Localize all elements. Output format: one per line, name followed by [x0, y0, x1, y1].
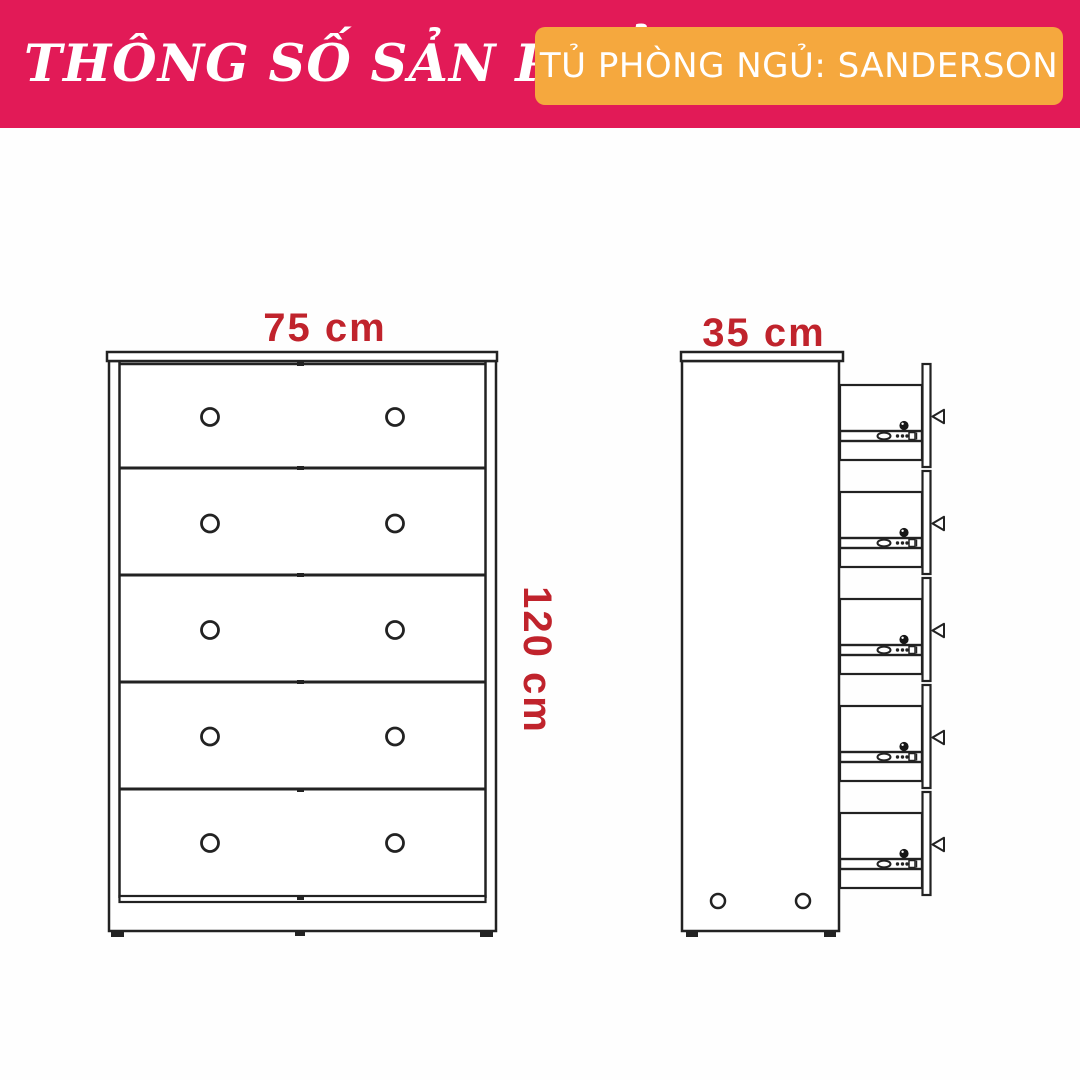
drawer-knob: [387, 622, 404, 639]
rail-bearing-dot: [901, 541, 904, 544]
rail-bearing-dot: [905, 541, 908, 544]
front-carcass: [109, 361, 496, 931]
rail-ball: [899, 421, 908, 430]
side-foot-left: [686, 931, 698, 937]
drawer-knob: [202, 728, 219, 745]
front-foot-left: [111, 931, 124, 937]
drawer-box-side: [840, 385, 922, 460]
center-mark: [297, 466, 304, 470]
drawer-knob: [387, 515, 404, 532]
side-foot-right: [824, 931, 836, 937]
rail-bearing-dot: [905, 755, 908, 758]
drawer-box-side: [840, 706, 922, 781]
rail-bearing-dot: [896, 541, 899, 544]
side-hole-right: [796, 894, 810, 908]
rail-bearing-dot: [905, 434, 908, 437]
rail-ball-highlight: [901, 530, 903, 532]
rail-ball: [899, 742, 908, 751]
page: THÔNG SỐ SẢN PHẨM TỦ PHÒNG NGỦ: SANDERSO…: [0, 0, 1080, 1080]
rail-bearing-dot: [896, 648, 899, 651]
drawer-knob: [387, 409, 404, 426]
rail-end-bracket: [909, 754, 915, 761]
side-drawer-unit: [840, 792, 944, 895]
front-height-label: 120 cm: [515, 586, 559, 734]
front-foot-right: [480, 931, 493, 937]
rail-ball: [899, 849, 908, 858]
side-drawer-unit: [840, 364, 944, 467]
mounting-clip: [933, 410, 945, 423]
rail-roller: [878, 540, 891, 547]
rail-ball-highlight: [901, 851, 903, 853]
rail-roller: [878, 754, 891, 761]
drawer-front-edge: [923, 685, 931, 788]
drawer-box-side: [840, 599, 922, 674]
rail-ball: [899, 528, 908, 537]
side-depth-label: 35 cm: [702, 311, 825, 355]
side-drawer-unit: [840, 471, 944, 574]
rail-bearing-dot: [905, 648, 908, 651]
center-mark: [297, 788, 304, 792]
center-mark: [297, 896, 304, 900]
rail-bearing-dot: [896, 862, 899, 865]
rail-end-bracket: [909, 433, 915, 440]
front-top-board: [107, 352, 497, 361]
side-drawer-unit: [840, 578, 944, 681]
rail-ball-highlight: [901, 423, 903, 425]
rail-end-bracket: [909, 861, 915, 868]
drawer-box-side: [840, 492, 922, 567]
rail-bearing-dot: [901, 648, 904, 651]
front-view-drawing: [107, 352, 497, 937]
cabinet-spec-svg: 75 cm 120 cm 35 cm: [0, 0, 1080, 1080]
drawer-box-side: [840, 813, 922, 888]
rail-ball-highlight: [901, 637, 903, 639]
side-hole-left: [711, 894, 725, 908]
mounting-clip: [933, 731, 945, 744]
mounting-clip: [933, 624, 945, 637]
drawer-front-edge: [923, 578, 931, 681]
side-panel: [682, 361, 839, 931]
side-drawer-unit: [840, 685, 944, 788]
side-drawer-stack: [840, 364, 944, 895]
side-view-drawing: [681, 352, 944, 937]
drawer-knob: [387, 835, 404, 852]
technical-drawing: 75 cm 120 cm 35 cm: [0, 0, 1080, 1080]
center-mark: [297, 573, 304, 577]
center-mark: [297, 362, 304, 366]
drawer-front-edge: [923, 792, 931, 895]
mounting-clip: [933, 517, 945, 530]
front-foot-center: [295, 931, 305, 936]
drawer-knob: [387, 728, 404, 745]
rail-roller: [878, 647, 891, 654]
drawer-knob: [202, 515, 219, 532]
drawer-front-edge: [923, 364, 931, 467]
rail-bearing-dot: [896, 755, 899, 758]
rail-roller: [878, 861, 891, 868]
rail-bearing-dot: [901, 862, 904, 865]
rail-bearing-dot: [896, 434, 899, 437]
drawer-knob: [202, 622, 219, 639]
rail-end-bracket: [909, 540, 915, 547]
rail-bearing-dot: [905, 862, 908, 865]
front-width-label: 75 cm: [263, 306, 386, 350]
drawer-knob: [202, 835, 219, 852]
rail-bearing-dot: [901, 434, 904, 437]
mounting-clip: [933, 838, 945, 851]
rail-end-bracket: [909, 647, 915, 654]
rail-roller: [878, 433, 891, 440]
drawer-front-edge: [923, 471, 931, 574]
center-mark: [297, 680, 304, 684]
drawer-knob: [202, 409, 219, 426]
rail-ball: [899, 635, 908, 644]
rail-bearing-dot: [901, 755, 904, 758]
rail-ball-highlight: [901, 744, 903, 746]
